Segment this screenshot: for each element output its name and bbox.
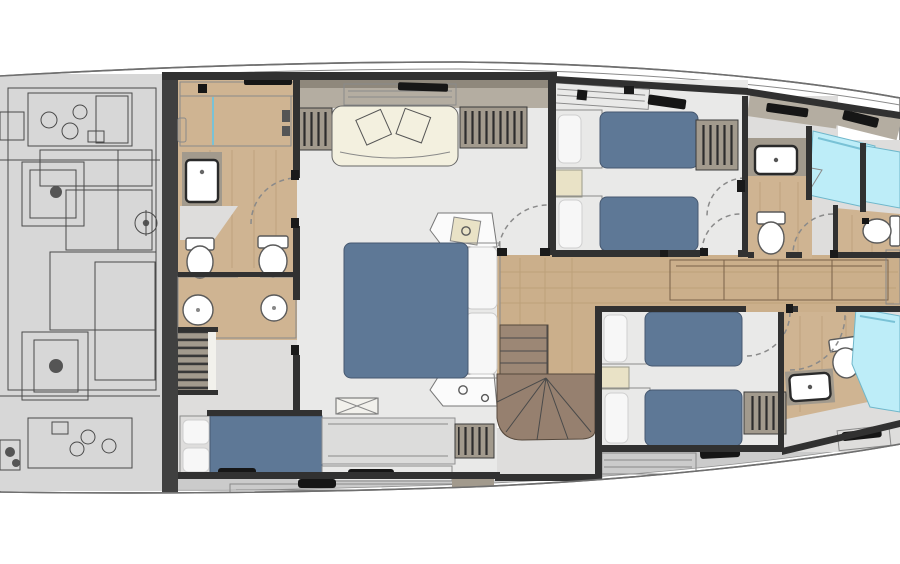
aft-stairs-rail [208,332,216,390]
aft-stairs-treads [178,332,208,390]
wet-room-partition [238,274,260,302]
hatch-stripes [458,427,491,455]
drain-icon [196,308,200,312]
hatch-stripes [298,112,329,146]
double-bed [344,243,468,378]
hatch-stripes [748,396,782,430]
pillow [183,448,209,472]
aft-stairs [178,332,216,390]
machinery-circle [50,186,62,198]
machinery-circle [49,359,63,373]
nightstand [430,374,497,406]
pillow [604,315,627,362]
nightstand [430,213,497,247]
shower [862,146,900,208]
radiator-hatch [295,108,332,150]
drain-icon [272,306,276,310]
dresser [322,418,455,464]
vanity [785,368,835,405]
bulkhead [162,72,178,492]
engine-room [0,74,162,491]
pillow [559,200,582,248]
pillow [183,420,209,444]
pillow [558,115,581,163]
locker-handle [298,479,336,488]
faucet-icon [774,158,778,162]
vent-icon [577,90,588,101]
radiator-hatch [455,424,494,458]
pillow [605,393,628,443]
shower-mixer-icon [282,110,290,122]
single-berth [210,416,322,476]
hatch-stripes [464,111,523,144]
pillow [466,313,497,374]
flush-icon [862,218,869,224]
single-bed [645,390,742,446]
single-bed [600,197,698,251]
toilet-bowl [758,222,784,254]
radiator-hatch [696,120,738,170]
stair-straight [500,325,548,375]
shower-head-icon [282,126,290,136]
toilet [258,236,288,277]
sofa-body [332,106,458,166]
radiator-hatch [460,107,527,148]
sofa [332,106,458,166]
stair-winder [497,374,595,440]
sink [186,160,218,202]
toilet [757,212,785,254]
machinery-circle [12,459,20,467]
single-bed [600,112,698,168]
yacht-floor-plan [0,0,900,564]
faucet-icon [200,170,204,174]
pillow [466,247,497,309]
machinery-circle [5,447,15,457]
vent-icon [198,84,207,93]
hatch-stripes [700,125,734,165]
wardrobe [336,398,378,414]
floor-plan-canvas [0,0,900,564]
single-bed [645,312,742,366]
nightstand [553,170,582,197]
nightstand-tray [450,217,480,245]
